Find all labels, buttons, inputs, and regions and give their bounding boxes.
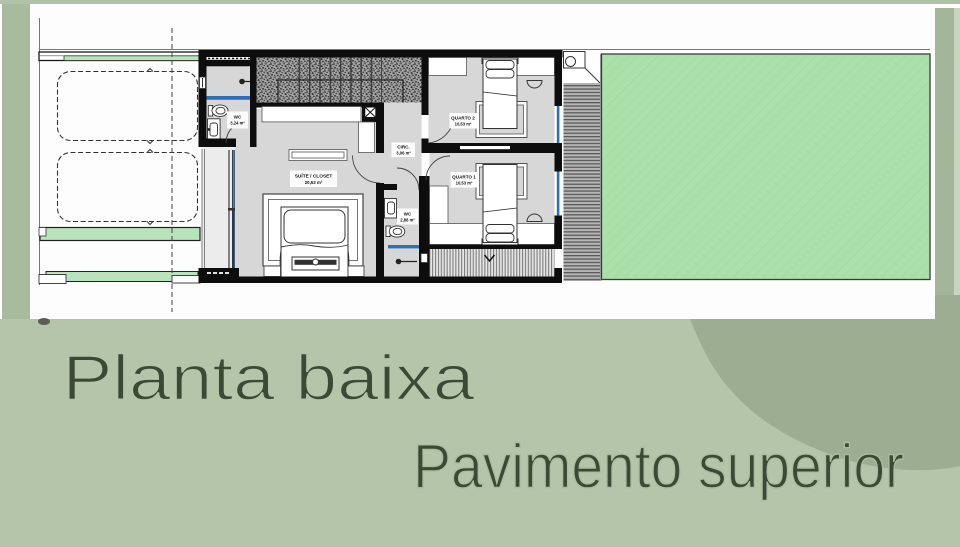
svg-text:Planta baixa: Planta baixa (63, 344, 476, 414)
svg-text:Pavimento superior: Pavimento superior (413, 433, 904, 502)
